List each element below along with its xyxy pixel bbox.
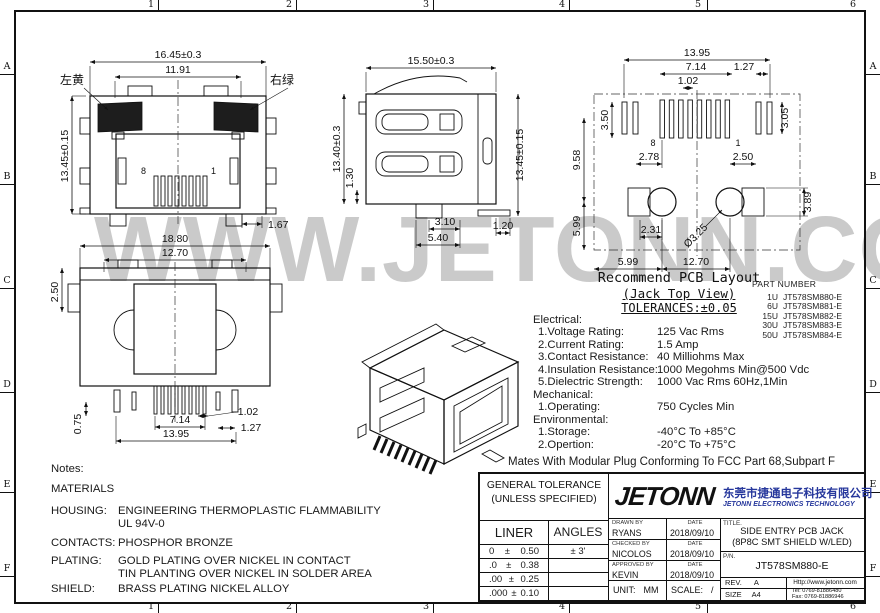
logo-row: JETONN 东莞市捷通电子科技有限公司 JETONN ELECTRONICS …	[608, 474, 864, 518]
zone-col-label: 2	[282, 602, 296, 612]
dim-label: 5.40	[428, 232, 449, 244]
spec-row: 3.Contact Resistance: 40 Milliohms Max	[533, 351, 838, 363]
zone-row-label: D	[866, 380, 880, 390]
tolerance-row: .00±0.25	[480, 572, 548, 586]
rear-view: 18.80 12.70 2.50 0.75 7.14 1.02 1.27 13.…	[52, 232, 302, 450]
checked-by-cell: CHECKED BY NICOLOS	[608, 539, 666, 560]
drawn-by-cell: DRAWN BY RYANS	[608, 518, 666, 539]
material-label: CONTACTS:	[51, 537, 118, 550]
spec-row: 2.Current Rating: 1.5 Amp	[533, 339, 838, 351]
tolerance-row: 0±0.50	[480, 544, 548, 558]
pin-number: 1	[211, 166, 216, 176]
zone-col-label: 5	[691, 602, 705, 612]
dim-label: 11.91	[165, 64, 191, 76]
zone-col-label: 2	[282, 0, 296, 10]
zone-row-label: A	[0, 62, 14, 72]
size-cell: SIZE A4	[720, 588, 786, 600]
approved-by-cell: APPROVED BY KEVIN	[608, 560, 666, 580]
dim-label: 1.20	[493, 220, 514, 232]
pcb-caption-line2: (Jack Top View)	[586, 286, 772, 301]
dim-label: 3.05	[779, 108, 791, 129]
dim-label: 5.99	[618, 256, 639, 268]
notes-title: Notes:	[51, 463, 84, 476]
material-label: SHIELD:	[51, 583, 118, 596]
spec-row: 4.Insulation Resistance: 1000 Megohms Mi…	[533, 364, 838, 376]
dim-label: 7.14	[170, 414, 191, 426]
dim-label: 7.14	[686, 61, 707, 73]
part-number-header: PART NUMBER	[752, 279, 842, 289]
zone-col-label: 6	[846, 0, 860, 10]
zone-col-label: 5	[691, 0, 705, 10]
pin-number: 8	[141, 166, 146, 176]
dim-label: 13.95	[684, 47, 710, 59]
dim-label: 1.27	[734, 61, 755, 73]
zone-col-label: 1	[144, 602, 158, 612]
material-row: PLATING: GOLD PLATING OVER NICKEL IN CON…	[51, 555, 481, 580]
zone-col-label: 3	[419, 602, 433, 612]
title-cell: TITLE. SIDE ENTRY PCB JACK (8P8C SMT SHI…	[720, 518, 864, 551]
dim-label: 1.67	[268, 219, 289, 231]
dim-label: 15.50±0.3	[408, 55, 455, 67]
spec-section-environmental: Environmental:	[533, 414, 838, 426]
zone-row-label: B	[866, 172, 880, 182]
dim-label: 18.80	[162, 233, 188, 245]
dim-label: 1.27	[241, 422, 262, 434]
dim-label: 5.99	[571, 216, 583, 237]
material-row: HOUSING: ENGINEERING THERMOPLASTIC FLAMM…	[51, 505, 481, 530]
material-row: CONTACTS: PHOSPHOR BRONZE	[51, 537, 481, 550]
dim-label: 1.02	[678, 75, 699, 87]
rev-cell: REV. A	[720, 577, 786, 588]
unit-cell: UNIT: MM	[608, 580, 666, 600]
title-block: GENERAL TOLERANCE (UNLESS SPECIFIED) LIN…	[478, 472, 866, 602]
dim-label: 0.75	[72, 414, 84, 435]
spec-section-electrical: Electrical:	[533, 314, 838, 326]
pin-number: 1	[735, 138, 740, 148]
part-number-value: JT578SM880-E	[720, 560, 864, 572]
dim-label: 13.45±0.15	[59, 130, 71, 183]
zone-col-label: 1	[144, 0, 158, 10]
front-view: 16.45±0.3 11.91 8 1 13.45±0.15 左黄 右绿 1.6…	[58, 46, 303, 241]
side-view: 15.50±0.3 13.40±0.3 1.30 13.45±0.15 3.10…	[328, 52, 533, 257]
specifications: Electrical: 1.Voltage Rating: 125 Vac Rm…	[533, 314, 838, 451]
materials-header: MATERIALS	[51, 483, 114, 496]
spec-section-mechanical: Mechanical:	[533, 389, 838, 401]
approved-date-cell: DATE 2018/09/10	[666, 560, 720, 580]
spec-row: 1.Voltage Rating: 125 Vac Rms	[533, 326, 838, 338]
company-name-cn: 东莞市捷通电子科技有限公司	[723, 485, 873, 501]
isometric-view	[332, 282, 537, 492]
dim-label: 12.70	[162, 247, 188, 259]
pcb-caption-line1: Recommend PCB Layout	[586, 271, 772, 286]
pcb-layout-view: 13.95 1.27 7.14 1.02 8 1 3.50 3.05 9.58 …	[572, 44, 834, 279]
drawing-title-line1: SIDE ENTRY PCB JACK	[720, 526, 864, 537]
scale-cell: SCALE: /	[666, 580, 720, 600]
zone-row-label: F	[866, 564, 880, 574]
drawing-title-line2: (8P8C SMT SHIELD W/LED)	[720, 537, 864, 548]
zone-col-label: 6	[846, 602, 860, 612]
zone-col-label: 4	[555, 602, 569, 612]
mating-footnote: Mates With Modular Plug Conforming To FC…	[508, 456, 835, 468]
zone-row-label: F	[0, 564, 14, 574]
dim-label: 3.10	[435, 216, 456, 228]
dim-label: 13.40±0.3	[331, 126, 343, 173]
zone-row-label: C	[866, 276, 880, 286]
tel-fax-cell: Tel: 0769-81886480 Fax: 0769-81886946	[786, 588, 864, 600]
material-row: SHIELD: BRASS PLATING NICKEL ALLOY	[51, 583, 481, 596]
dim-label: 12.70	[683, 256, 709, 268]
dim-label: 1.02	[238, 406, 259, 418]
dim-label: 2.50	[733, 151, 754, 163]
led-right-label: 右绿	[270, 72, 294, 87]
dim-label: 2.50	[49, 282, 61, 303]
material-label: PLATING:	[51, 555, 118, 580]
angles-column-header: ANGLES	[548, 520, 608, 544]
dim-label: 9.58	[571, 150, 583, 171]
spec-row: 1.Storage: -40°C To +85°C	[533, 426, 838, 438]
spec-row: 1.Operating: 750 Cycles Min	[533, 401, 838, 413]
jetonn-logo: JETONN	[613, 481, 715, 512]
zone-row-label: B	[0, 172, 14, 182]
dim-label: 13.45±0.15	[514, 129, 526, 182]
dim-label: 2.31	[641, 224, 662, 236]
drawn-date-cell: DATE 2018/09/10	[666, 518, 720, 539]
zone-row-label: A	[866, 62, 880, 72]
website: Http://www.jetonn.com	[786, 577, 864, 588]
fax: Fax: 0769-81886946	[792, 594, 864, 600]
zone-col-label: 4	[555, 0, 569, 10]
tolerance-angle: ± 3'	[548, 544, 608, 558]
dim-label: 16.45±0.3	[155, 49, 202, 61]
dim-label: 3.50	[599, 110, 611, 131]
drawing-sheet: WWW.JETONN.COM 1 2 3 4 5 6 1 2 3 4 5 6 A…	[0, 0, 880, 613]
pin-number: 8	[650, 138, 655, 148]
spec-row: 2.Opertion: -20°C To +75°C	[533, 439, 838, 451]
dim-label: 1.30	[344, 168, 356, 189]
tolerance-row: .0±0.38	[480, 558, 548, 572]
checked-date-cell: DATE 2018/09/10	[666, 539, 720, 560]
dim-label: 3.89	[802, 192, 814, 213]
pn-cell: P/N. JT578SM880-E	[720, 551, 864, 577]
company-name-en: JETONN ELECTRONICS TECHNOLOGY	[723, 501, 873, 508]
zone-row-label: D	[0, 380, 14, 390]
material-label: HOUSING:	[51, 505, 118, 530]
dim-label: 13.95	[163, 428, 189, 440]
led-left-label: 左黄	[60, 72, 84, 87]
spec-row: 5.Dielectric Strength: 1000 Vac Rms 60Hz…	[533, 376, 838, 388]
liner-column-header: LINER	[480, 520, 548, 544]
zone-col-label: 3	[419, 0, 433, 10]
dim-label: 2.78	[639, 151, 660, 163]
zone-row-label: C	[0, 276, 14, 286]
general-tolerance-header: GENERAL TOLERANCE (UNLESS SPECIFIED)	[480, 479, 608, 507]
tolerance-row: .000±0.10	[480, 586, 548, 600]
zone-row-label: E	[0, 480, 14, 490]
pcb-caption: Recommend PCB Layout (Jack Top View) TOL…	[586, 271, 772, 316]
